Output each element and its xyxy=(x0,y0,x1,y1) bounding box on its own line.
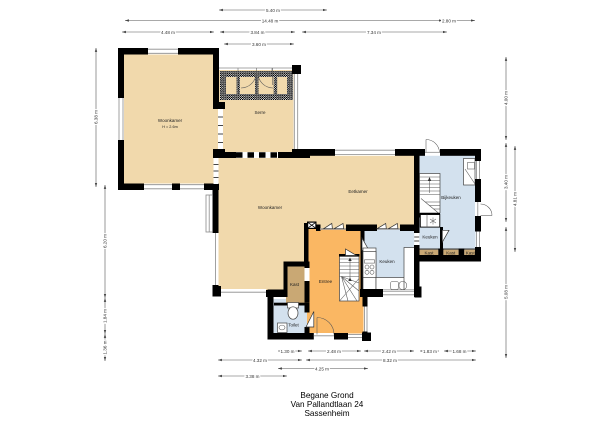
svg-text:Woonkamer: Woonkamer xyxy=(258,205,283,210)
svg-text:6.20 m: 6.20 m xyxy=(103,234,108,248)
svg-text:1.84 m: 1.84 m xyxy=(103,309,108,323)
svg-text:8.32 m: 8.32 m xyxy=(383,358,397,363)
svg-text:3.38 m: 3.38 m xyxy=(245,374,259,379)
svg-text:Entree: Entree xyxy=(319,279,333,284)
svg-text:Woonkamer: Woonkamer xyxy=(158,118,183,123)
svg-text:14.48 m: 14.48 m xyxy=(262,18,279,23)
svg-text:6.38 m: 6.38 m xyxy=(94,110,99,124)
svg-text:4.81 m: 4.81 m xyxy=(513,192,518,206)
svg-text:Serre: Serre xyxy=(254,110,266,115)
svg-text:2.42 m: 2.42 m xyxy=(382,349,396,354)
svg-text:2.80 m: 2.80 m xyxy=(442,18,456,23)
svg-text:3.60 m: 3.60 m xyxy=(252,42,266,47)
svg-text:Keuken: Keuken xyxy=(379,259,395,264)
svg-text:Sassenheim: Sassenheim xyxy=(304,409,349,418)
svg-text:4.48 m: 4.48 m xyxy=(161,30,175,35)
svg-text:Kast: Kast xyxy=(290,282,300,287)
svg-text:1.68 m: 1.68 m xyxy=(452,349,466,354)
svg-text:Begane Grond: Begane Grond xyxy=(300,391,354,400)
svg-text:4.32 m: 4.32 m xyxy=(253,358,267,363)
svg-text:Kast: Kast xyxy=(424,251,434,256)
svg-text:Van Pallandtlaan 24: Van Pallandtlaan 24 xyxy=(291,400,364,409)
svg-text:4.00 m: 4.00 m xyxy=(504,91,509,105)
svg-text:2.48 m: 2.48 m xyxy=(327,349,341,354)
svg-text:Toilet: Toilet xyxy=(288,323,299,328)
svg-text:Eetkamer: Eetkamer xyxy=(348,189,368,194)
svg-text:Kast: Kast xyxy=(446,251,456,256)
svg-text:7.34 m: 7.34 m xyxy=(367,30,381,35)
svg-text:1.30 m: 1.30 m xyxy=(280,349,294,354)
svg-text:Bijkeuken: Bijkeuken xyxy=(441,195,461,200)
svg-text:5.08 m: 5.08 m xyxy=(504,285,509,299)
svg-text:1.83 m: 1.83 m xyxy=(423,349,437,354)
svg-text:1.36 m: 1.36 m xyxy=(103,340,108,354)
svg-text:3.40 m: 3.40 m xyxy=(504,175,509,189)
svg-text:Kast: Kast xyxy=(466,251,476,256)
svg-text:5.40 m: 5.40 m xyxy=(266,8,280,13)
svg-text:4.25 m: 4.25 m xyxy=(315,366,329,371)
svg-text:3.84 m: 3.84 m xyxy=(250,30,264,35)
svg-text:H = 2.6m: H = 2.6m xyxy=(162,125,178,129)
svg-text:Keuken: Keuken xyxy=(422,235,438,240)
